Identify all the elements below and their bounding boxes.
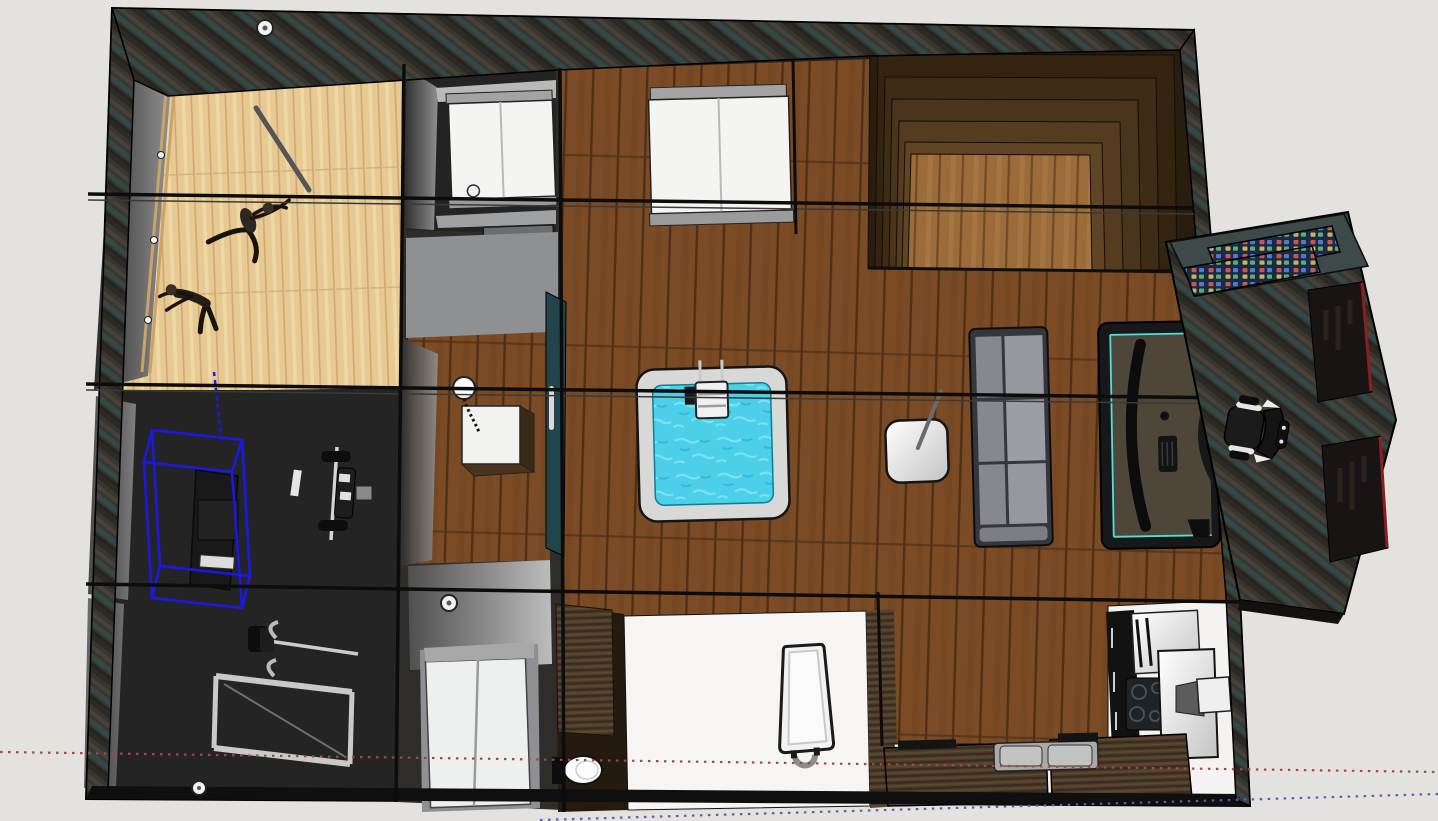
sauna[interactable] [868, 30, 1196, 272]
island-appliance [1197, 677, 1231, 713]
downlight-1-core [263, 26, 268, 31]
barbell-plate-bottom [318, 520, 348, 531]
ladder-pump [684, 386, 694, 404]
bed-1[interactable] [445, 90, 557, 209]
sofa-seat-2 [1006, 399, 1046, 461]
annex-panel-2[interactable] [1322, 436, 1388, 562]
sofa-back-3 [979, 464, 1007, 525]
sink-basin-2 [1048, 745, 1092, 766]
bathroom[interactable] [552, 604, 898, 812]
closet[interactable] [420, 642, 540, 812]
counter-item-2 [1058, 732, 1098, 742]
bathroom-floor[interactable] [624, 611, 870, 810]
ladder-rung-2 [698, 406, 726, 407]
counter-item-1 [898, 739, 956, 750]
panel-2-face [1322, 436, 1388, 562]
bench-pad-slat-1 [339, 474, 351, 483]
door-handle [549, 386, 554, 430]
machine-seat [198, 500, 238, 540]
bed-1-clock [467, 185, 479, 197]
machine-pad-1 [200, 555, 235, 569]
shower-tray[interactable] [462, 406, 534, 476]
sofa-seat-3 [1008, 463, 1048, 524]
viewport-stage[interactable] [0, 0, 1438, 821]
sofa-armrest [979, 526, 1047, 542]
sofa[interactable] [969, 327, 1053, 547]
rack-post-2 [350, 692, 352, 764]
ladder-rung-1 [698, 394, 726, 395]
barbell-plate-top [321, 451, 351, 462]
bench-pad-slat-2 [340, 492, 352, 501]
hall-floor[interactable] [406, 232, 558, 338]
annex-panel-1[interactable] [1308, 282, 1372, 402]
chair-seat [1223, 405, 1265, 451]
bed-2[interactable] [646, 84, 794, 226]
barre-bracket-2 [151, 237, 158, 244]
ladder-platform [695, 382, 728, 419]
bathtub-foot-r [814, 747, 820, 755]
barre-bracket-1 [158, 152, 165, 159]
sofa-seat-1 [1004, 335, 1044, 397]
shower-room-left-wall-face [400, 338, 438, 566]
sofa-back-2 [977, 400, 1005, 462]
barre-bracket-3 [145, 317, 152, 324]
rack-post-1 [214, 676, 216, 748]
wall-bracket [356, 486, 372, 500]
shower-tray-side [520, 406, 534, 472]
sink-basin-1 [1000, 746, 1042, 766]
hot-tub[interactable] [636, 358, 790, 522]
building[interactable] [84, 8, 1250, 812]
sofa-back-1 [975, 336, 1003, 398]
bathtub-foot-l [791, 750, 797, 758]
3d-viewport[interactable] [0, 0, 1438, 821]
bathtub[interactable] [776, 644, 834, 766]
downlight-2-core [447, 601, 452, 606]
bedroom-1-left-wall-face [404, 68, 438, 230]
downlight-3-core [197, 786, 201, 790]
toilet-tank [552, 757, 563, 784]
lamp-base[interactable] [885, 419, 949, 483]
